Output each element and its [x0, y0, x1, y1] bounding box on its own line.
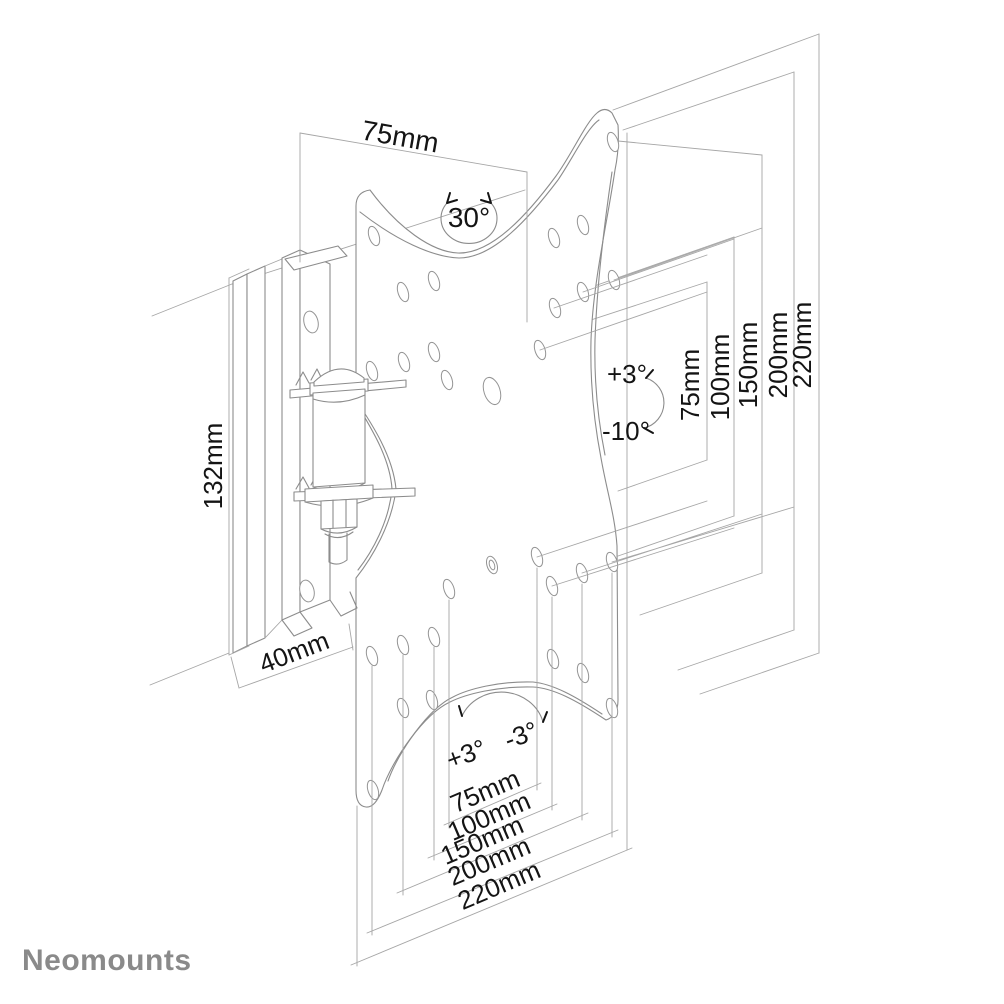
label-top-width: 75mm: [359, 115, 441, 159]
technical-drawing-canvas: 75mm 30° 132mm 40mm +3° -10° +3° -3° 75m…: [0, 0, 1004, 1004]
wall-mount-diagram: 75mm 30° 132mm 40mm +3° -10° +3° -3° 75m…: [0, 0, 1004, 1004]
vesa-label-220-vertical: 220mm: [787, 302, 817, 389]
label-arm-depth: 40mm: [255, 625, 333, 679]
swivel-arc-bottom: [459, 692, 547, 722]
vesa-label-75-vertical: 75mm: [675, 349, 705, 421]
vesa-label-100-vertical: 100mm: [705, 334, 735, 421]
label-swivel-right: -3°: [500, 715, 542, 755]
vesa-width-labels-vertical: 75mm 100mm 150mm 200mm 220mm: [675, 302, 817, 421]
vesa-width-labels-bottom: 75mm 100mm 150mm 200mm 220mm: [436, 763, 545, 916]
label-arm-height: 132mm: [198, 423, 228, 510]
brand-logo: Neomounts: [22, 944, 192, 977]
vesa-label-150-vertical: 150mm: [733, 322, 763, 409]
label-tilt-up: +3°: [607, 359, 647, 389]
label-tilt-down: -10°: [602, 416, 650, 446]
label-swivel-range: 30°: [448, 202, 490, 233]
